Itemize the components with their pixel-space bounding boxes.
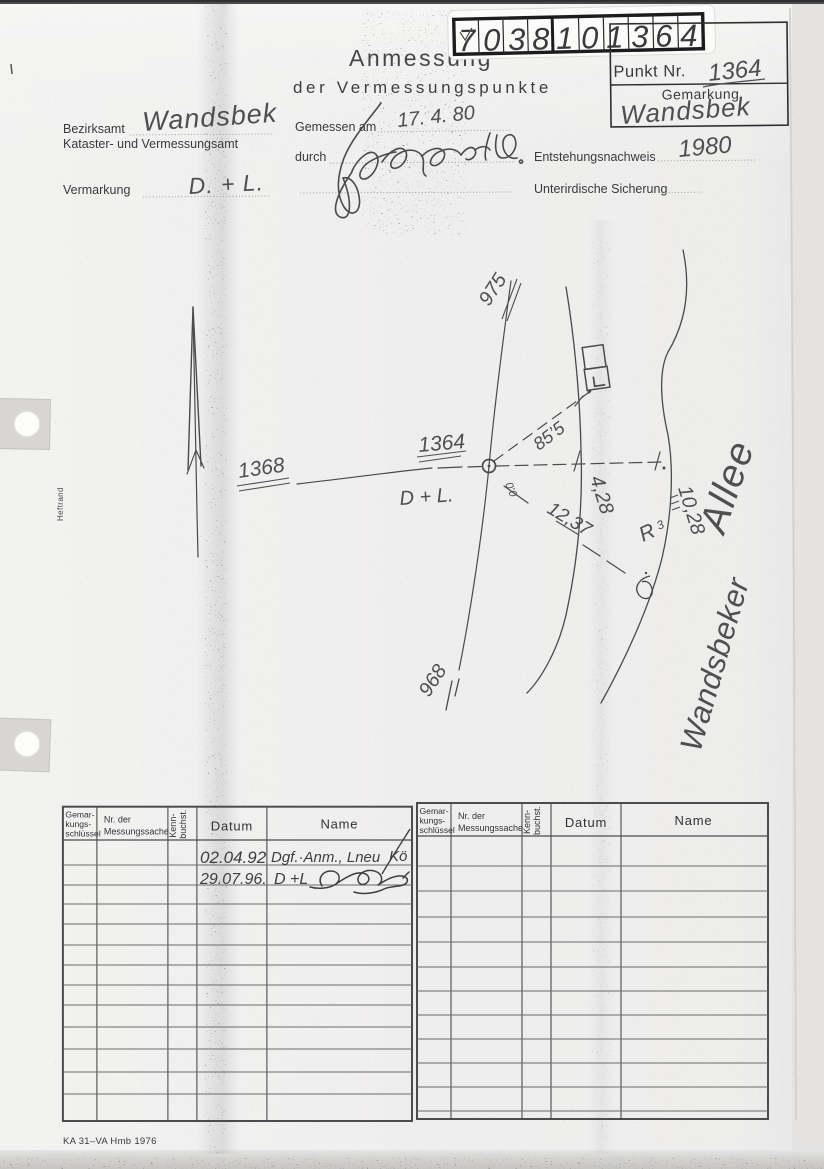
svg-text:3: 3 [508,22,526,57]
svg-text:Datum: Datum [211,819,253,834]
svg-text:der Vermessungspunkte: der Vermessungspunkte [293,78,552,97]
svg-text:7: 7 [458,23,478,58]
svg-text:1364: 1364 [417,430,466,457]
svg-text:KA 31–VA Hmb 1976: KA 31–VA Hmb 1976 [63,1136,157,1147]
svg-text:Kö: Kö [389,848,407,865]
svg-text:Bezirksamt: Bezirksamt [63,122,125,136]
svg-text:Kenn-: Kenn- [168,814,178,838]
svg-text:D + L.: D + L. [399,484,454,510]
svg-text:D +L: D +L [274,871,308,888]
svg-text:schlüssel: schlüssel [65,829,100,839]
svg-text:29.07.96.: 29.07.96. [199,871,267,888]
svg-text:1: 1 [556,21,574,56]
svg-text:Dgf.·Anm., Lneu: Dgf.·Anm., Lneu [271,849,381,866]
svg-text:02.04.92: 02.04.92 [200,848,267,867]
svg-text:schlüssel: schlüssel [420,825,455,835]
svg-text:durch: durch [295,150,326,164]
svg-text:Gemar-: Gemar- [65,810,94,820]
svg-text:Kataster- und Vermessungsamt: Kataster- und Vermessungsamt [63,137,239,151]
svg-text:Nr. der: Nr. der [458,811,485,821]
svg-text:Name: Name [320,817,358,832]
svg-text:D. + L.: D. + L. [188,169,265,199]
svg-text:kungs-: kungs- [420,816,446,826]
svg-text:Gemessen am: Gemessen am [295,120,376,134]
svg-text:Punkt Nr.: Punkt Nr. [613,62,686,81]
svg-text:kungs-: kungs- [65,819,91,829]
svg-text:1980: 1980 [677,131,733,163]
svg-text:buchst.: buchst. [532,806,542,835]
svg-text:Vermarkung: Vermarkung [63,183,130,197]
svg-text:buchst.: buchst. [178,810,188,839]
svg-text:Kenn-: Kenn- [522,810,532,834]
svg-text:8: 8 [532,21,551,56]
svg-text:Unterirdische Sicherung: Unterirdische Sicherung [534,182,667,196]
svg-text:Heftrand: Heftrand [56,487,65,521]
svg-text:1: 1 [606,20,624,55]
svg-text:0: 0 [483,22,501,57]
svg-text:Datum: Datum [565,815,607,830]
svg-text:Gemar-: Gemar- [420,806,449,816]
svg-text:Nr. der: Nr. der [104,815,131,825]
svg-text:Entstehungsnachweis: Entstehungsnachweis [534,150,656,164]
svg-text:Messungssache: Messungssache [458,823,523,833]
svg-text:Name: Name [675,813,713,828]
svg-text:0: 0 [581,20,599,55]
svg-text:Messungssache: Messungssache [104,827,169,837]
